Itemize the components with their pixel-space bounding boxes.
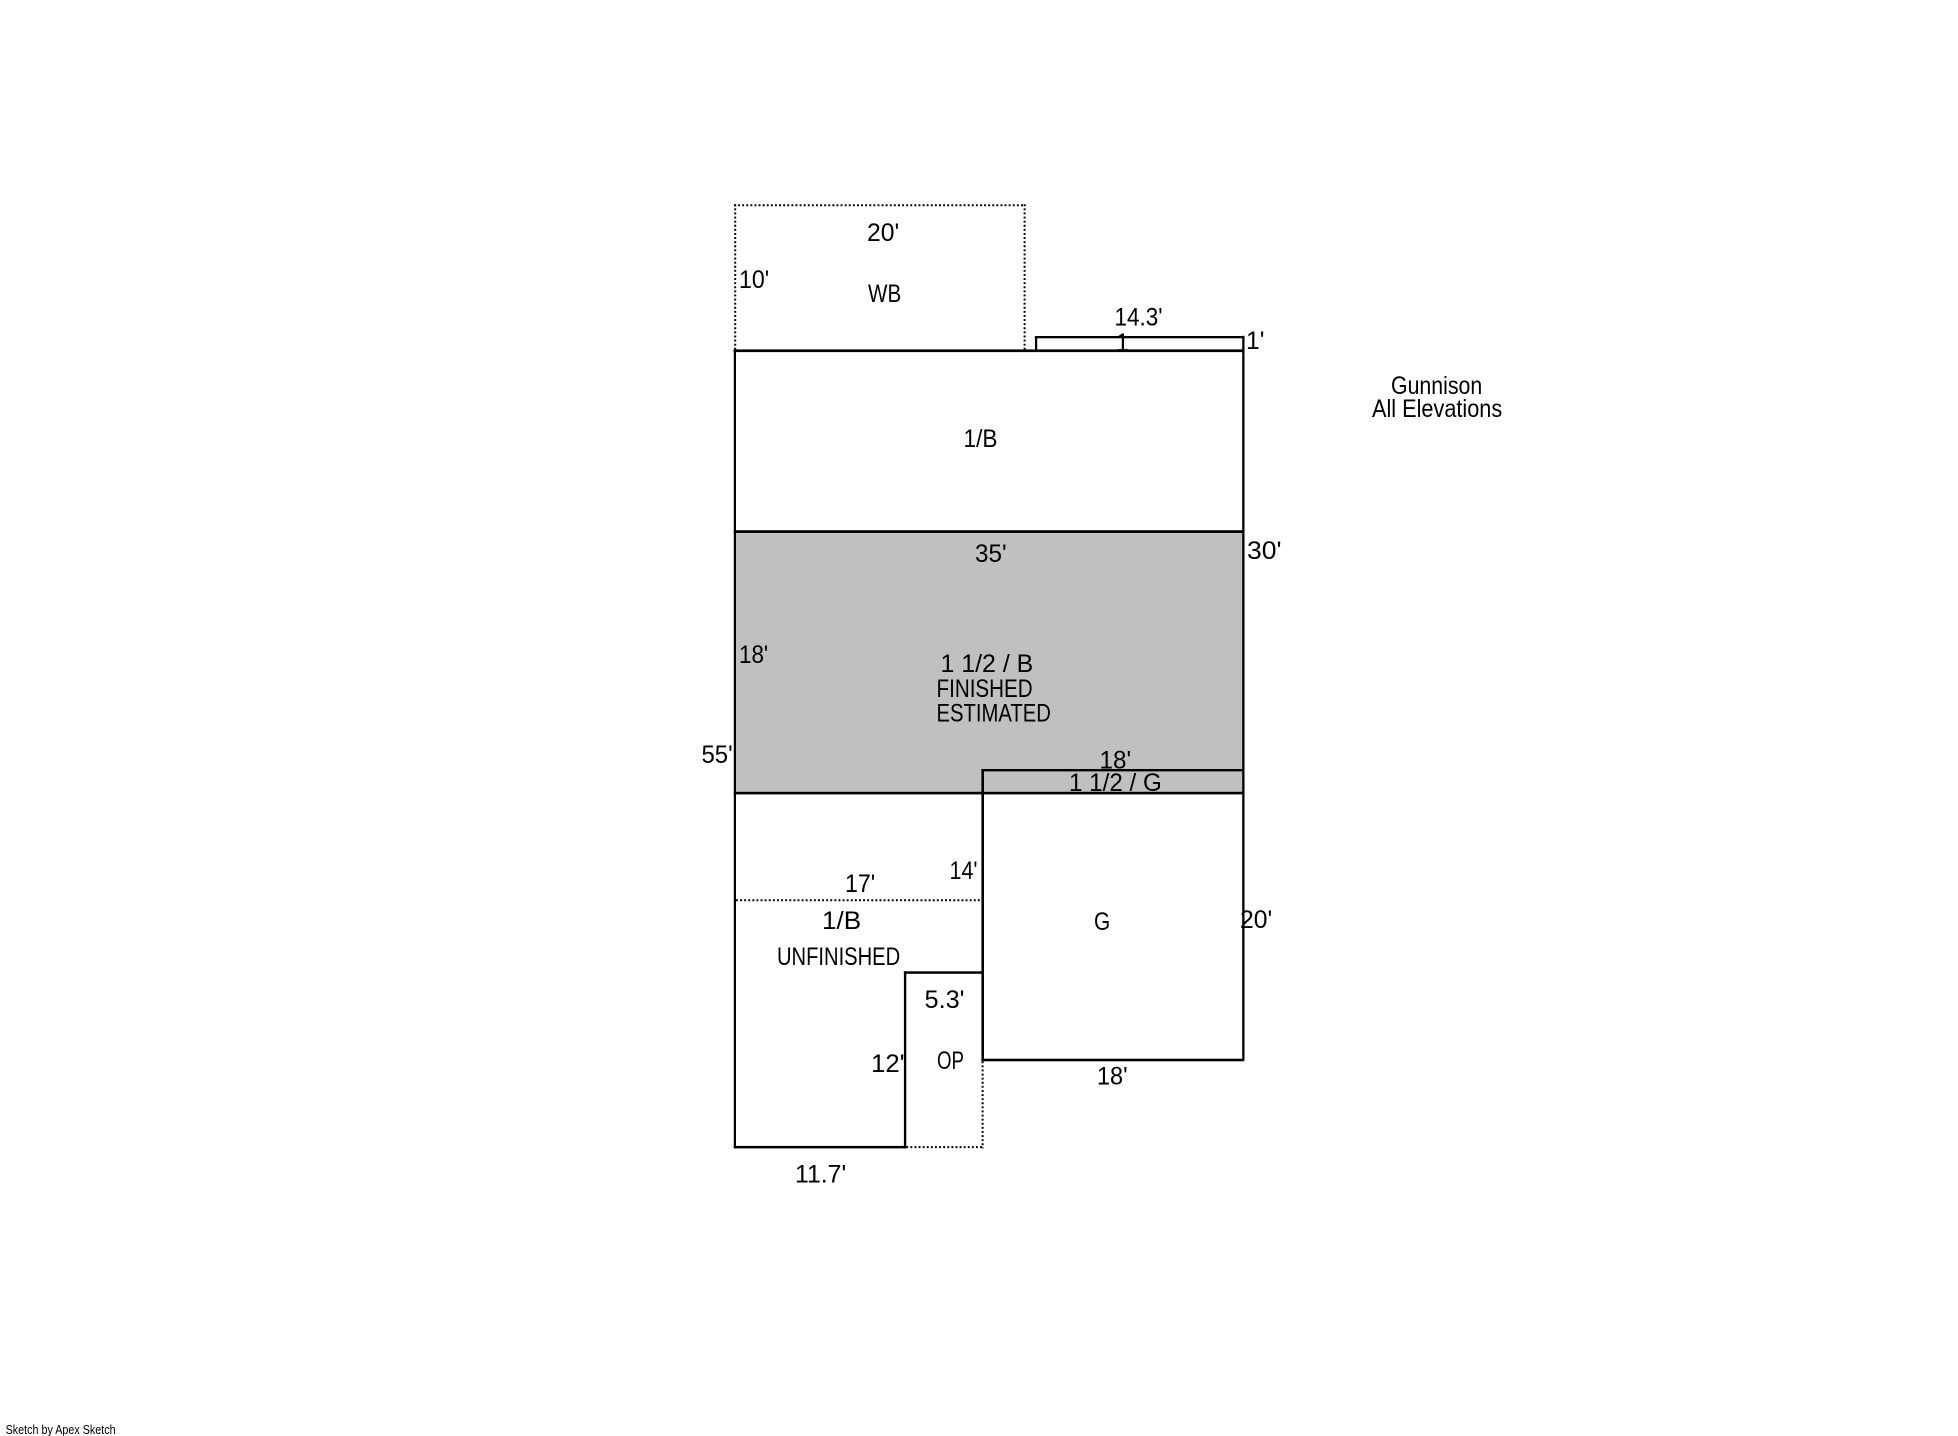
svg-text:1 1/2 / G: 1 1/2 / G [1069,769,1162,797]
svg-text:30': 30' [1247,537,1282,565]
svg-text:1/B: 1/B [822,907,861,935]
svg-text:All Elevations: All Elevations [1372,395,1502,423]
svg-text:18': 18' [1097,1063,1128,1091]
svg-text:55': 55' [702,741,733,769]
svg-text:WB: WB [868,280,901,308]
svg-text:14.3': 14.3' [1115,303,1163,331]
svg-text:1': 1' [1246,327,1264,355]
svg-text:12': 12' [871,1050,905,1078]
svg-text:UNFINISHED: UNFINISHED [777,943,900,971]
svg-text:OP: OP [937,1047,964,1075]
svg-text:1: 1 [1116,329,1130,357]
svg-text:20': 20' [867,219,899,247]
svg-text:14': 14' [950,857,978,885]
svg-text:35': 35' [975,540,1007,568]
svg-text:18': 18' [739,641,768,669]
svg-text:17': 17' [845,870,875,898]
svg-text:1 1/2 / B: 1 1/2 / B [941,650,1034,678]
svg-text:ESTIMATED: ESTIMATED [937,700,1051,728]
svg-text:Sketch by Apex Sketch: Sketch by Apex Sketch [6,1423,116,1436]
svg-text:G: G [1094,908,1110,936]
svg-text:10': 10' [739,266,769,294]
svg-text:11.7': 11.7' [795,1161,846,1189]
svg-text:1/B: 1/B [964,425,998,453]
svg-text:20': 20' [1240,906,1272,934]
svg-text:5.3': 5.3' [925,986,965,1014]
